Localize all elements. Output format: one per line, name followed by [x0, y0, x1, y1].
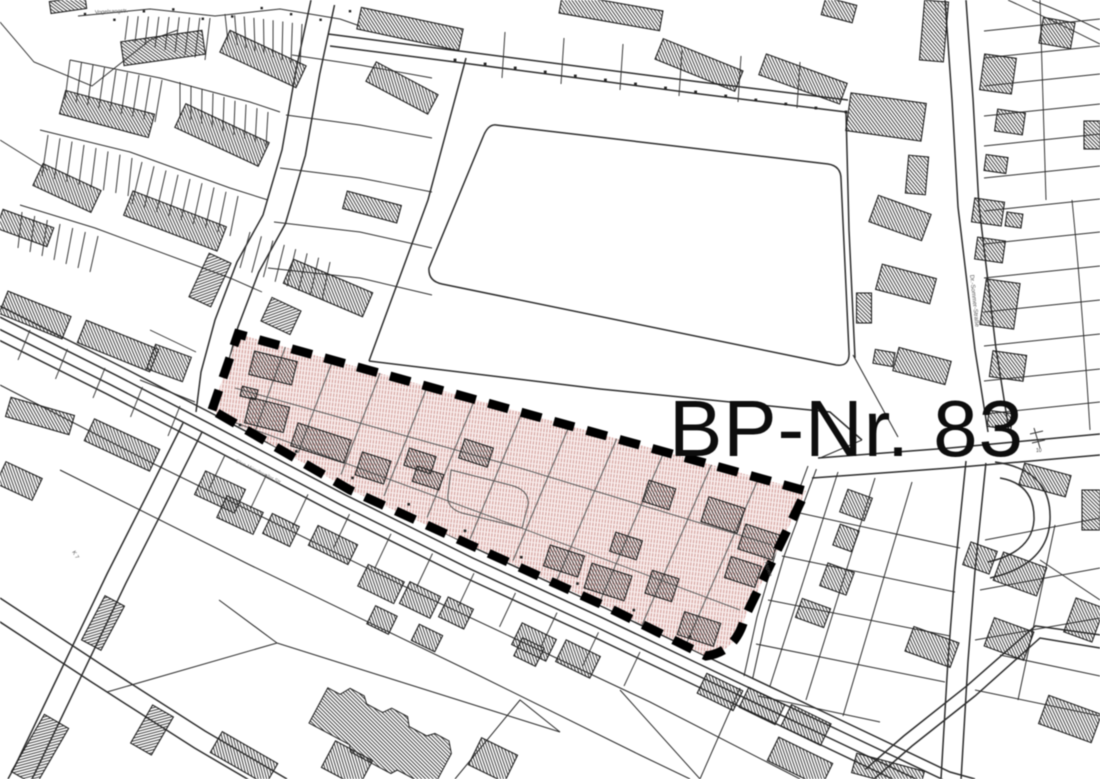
svg-text:10: 10 [1036, 448, 1042, 454]
svg-text:BP-Nr. 83: BP-Nr. 83 [669, 384, 1024, 473]
